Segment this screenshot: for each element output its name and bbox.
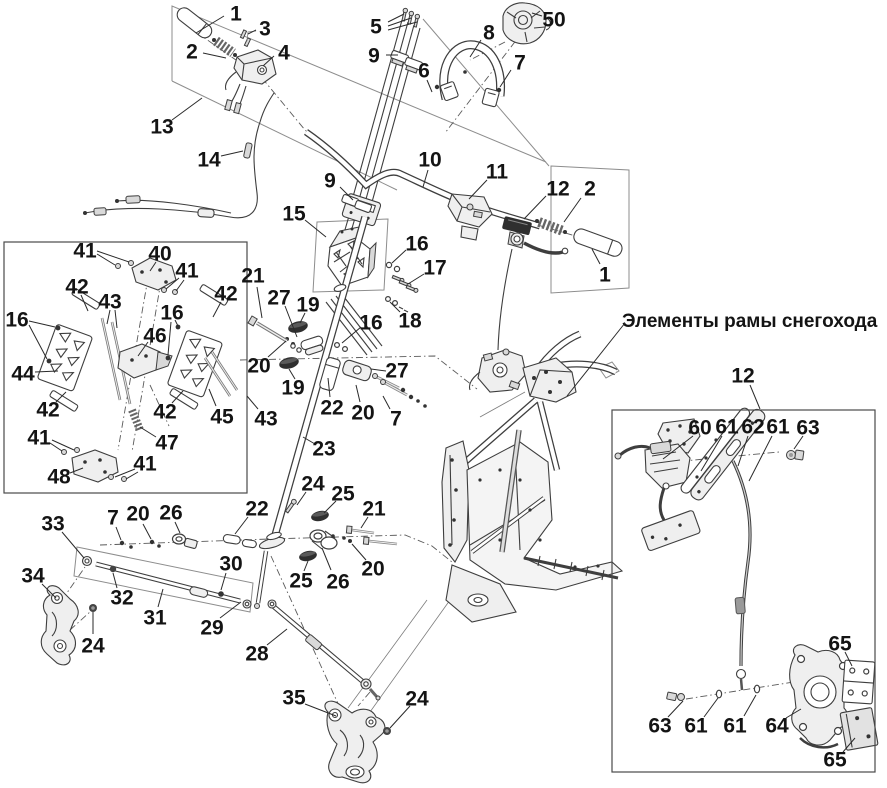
callout-20: 20 xyxy=(247,355,270,378)
hardware-16-17-18 xyxy=(386,262,419,312)
callout-42: 42 xyxy=(214,283,237,306)
callout-16: 16 xyxy=(405,233,428,256)
leader-line-47 xyxy=(140,427,156,437)
nut-32 xyxy=(110,566,116,572)
parts-diagram-page: 1234131459685079101112211516171821271916… xyxy=(0,0,887,788)
callout-61: 61 xyxy=(684,715,708,738)
callout-25: 25 xyxy=(289,570,313,593)
callout-12: 12 xyxy=(546,178,569,201)
callout-41: 41 xyxy=(27,427,51,450)
tie-rod-28 xyxy=(268,600,380,700)
leader-line-30 xyxy=(221,573,226,590)
callout-34: 34 xyxy=(21,565,45,588)
callout-22: 22 xyxy=(245,498,268,521)
callout-45: 45 xyxy=(210,406,234,429)
callout-26: 26 xyxy=(326,571,349,594)
brake-cable-14 xyxy=(83,93,274,218)
throttle-housing-4 xyxy=(225,50,276,114)
callout-21: 21 xyxy=(241,265,265,288)
leader-line-12 xyxy=(524,196,546,219)
pad-plate-65-upper xyxy=(842,660,875,704)
callout-7: 7 xyxy=(107,507,119,530)
callout-27: 27 xyxy=(267,287,290,310)
callout-7: 7 xyxy=(390,408,402,431)
pad-plate-65-lower xyxy=(840,707,878,750)
leader-line-2 xyxy=(203,53,226,58)
spindle-knuckle-35 xyxy=(325,701,385,783)
callout-10: 10 xyxy=(418,149,441,172)
callout-22: 22 xyxy=(320,397,343,420)
steering-parts-diagram: 1234131459685079101112211516171821271916… xyxy=(0,0,887,788)
callout-labels: 1234131459685079101112211516171821271916… xyxy=(5,3,855,772)
leader-line-20 xyxy=(268,341,286,357)
brake-lever-12 xyxy=(498,216,568,350)
callout-1: 1 xyxy=(230,3,242,26)
leader-line-2 xyxy=(564,198,581,222)
brake-caliper-64 xyxy=(790,645,850,748)
callout-40: 40 xyxy=(148,243,171,266)
clamp-bolts-5 xyxy=(401,8,420,27)
callout-14: 14 xyxy=(197,149,221,172)
leader-line-16 xyxy=(29,325,47,359)
callout-2: 2 xyxy=(584,178,596,201)
callout-5: 5 xyxy=(370,16,382,39)
leader-line-26 xyxy=(322,548,331,570)
callout-7: 7 xyxy=(514,52,526,75)
callout-11: 11 xyxy=(486,161,509,184)
callout-24: 24 xyxy=(405,688,429,711)
callout-8: 8 xyxy=(483,22,495,45)
callout-61: 61 xyxy=(715,416,739,439)
callout-42: 42 xyxy=(36,399,59,422)
callout-43: 43 xyxy=(98,291,121,314)
callout-64: 64 xyxy=(765,715,789,738)
bolt-30 xyxy=(218,591,224,597)
leader-line-14 xyxy=(221,151,243,156)
callout-44: 44 xyxy=(11,363,35,386)
callout-29: 29 xyxy=(200,617,223,640)
plate-44 xyxy=(37,324,93,391)
leader-line-61 xyxy=(749,436,772,481)
right-box-assembly xyxy=(615,406,878,750)
callout-9: 9 xyxy=(324,170,336,193)
brake-hose xyxy=(733,461,750,690)
leader-line-28 xyxy=(267,629,287,645)
leader-line-16 xyxy=(342,327,361,343)
callout-19: 19 xyxy=(296,294,319,317)
leader-line-45 xyxy=(209,389,216,406)
leader-line-16 xyxy=(29,321,55,327)
leader-line-7 xyxy=(383,396,390,409)
callout-12: 12 xyxy=(731,365,754,388)
callout-20: 20 xyxy=(361,558,384,581)
leader-line-20 xyxy=(143,524,151,539)
washer-16 xyxy=(335,343,340,348)
column-clamp-27-lower xyxy=(341,359,426,408)
callout-17: 17 xyxy=(423,257,446,280)
callout-41: 41 xyxy=(175,260,199,283)
callout-27: 27 xyxy=(385,360,408,383)
bolt-21-upper xyxy=(248,316,301,352)
washer-16b xyxy=(343,347,348,352)
callout-41: 41 xyxy=(73,240,97,263)
leader-line-16 xyxy=(392,250,406,263)
leader-line-13 xyxy=(172,98,202,120)
callout-62: 62 xyxy=(741,416,764,439)
callout-15: 15 xyxy=(282,203,306,226)
callout-31: 31 xyxy=(143,607,167,630)
callout-35: 35 xyxy=(282,687,306,710)
leader-line-27 xyxy=(285,306,297,337)
handlebar-pad-8 xyxy=(435,45,501,107)
leader-line-41 xyxy=(97,254,115,265)
callout-46: 46 xyxy=(143,325,166,348)
leader-line-61 xyxy=(744,695,756,716)
callout-50: 50 xyxy=(542,9,565,32)
callout-9: 9 xyxy=(368,45,380,68)
callout-1: 1 xyxy=(599,264,611,287)
callout-23: 23 xyxy=(312,438,335,461)
callout-24: 24 xyxy=(301,473,325,496)
plate-45 xyxy=(167,330,223,397)
callout-42: 42 xyxy=(65,276,88,299)
leader-line-16 xyxy=(168,322,171,355)
callout-65: 65 xyxy=(828,633,852,656)
callout-21: 21 xyxy=(362,498,386,521)
callout-26: 26 xyxy=(159,502,182,525)
callout-3: 3 xyxy=(259,18,271,41)
callout-4: 4 xyxy=(278,42,290,65)
callout-19: 19 xyxy=(281,377,304,400)
diagram-title: Элементы рамы снегохода xyxy=(622,311,878,332)
washer-61a xyxy=(716,690,721,698)
callout-18: 18 xyxy=(398,310,422,333)
callout-32: 32 xyxy=(110,587,133,610)
frame-drawing xyxy=(442,334,622,622)
callout-16: 16 xyxy=(5,309,28,332)
callout-16: 16 xyxy=(359,312,382,335)
leader-line-12 xyxy=(750,385,760,409)
leader-line-20 xyxy=(356,385,360,402)
leader-line-17 xyxy=(408,274,424,284)
callout-61: 61 xyxy=(766,416,790,439)
callout-28: 28 xyxy=(245,643,269,666)
callout-41: 41 xyxy=(133,453,157,476)
callout-60: 60 xyxy=(688,417,711,440)
callout-16: 16 xyxy=(160,302,183,325)
bolt-63-upper xyxy=(787,450,804,460)
callout-30: 30 xyxy=(219,553,242,576)
leader-line-15 xyxy=(305,220,326,237)
callout-48: 48 xyxy=(47,466,71,489)
callout-25: 25 xyxy=(331,483,355,506)
bracket-46 xyxy=(118,344,172,378)
callout-6: 6 xyxy=(418,60,430,83)
leader-line-41 xyxy=(52,440,74,450)
leader-line-27 xyxy=(371,369,386,371)
switch-block-11 xyxy=(448,194,492,240)
spindle-knuckle-34 xyxy=(41,586,78,665)
leader-line-31 xyxy=(158,589,163,607)
callout-13: 13 xyxy=(150,116,173,139)
callout-65: 65 xyxy=(823,749,847,772)
mid-caliper-assembly xyxy=(469,349,526,392)
callout-63: 63 xyxy=(796,417,819,440)
leader-line-33 xyxy=(62,532,84,558)
grip-1-right xyxy=(572,227,624,258)
callout-61: 61 xyxy=(723,715,747,738)
callout-63: 63 xyxy=(648,715,671,738)
screws-3 xyxy=(240,30,256,47)
callout-20: 20 xyxy=(126,503,149,526)
leader-line-21 xyxy=(257,287,262,318)
callout-42: 42 xyxy=(153,401,176,424)
callout-20: 20 xyxy=(351,402,374,425)
callout-33: 33 xyxy=(41,513,64,536)
callout-47: 47 xyxy=(155,432,178,455)
bolt-63-lower xyxy=(667,692,685,701)
callout-24: 24 xyxy=(81,635,105,658)
callout-2: 2 xyxy=(186,41,198,64)
washer-61b xyxy=(754,685,759,693)
callout-43: 43 xyxy=(254,408,277,431)
